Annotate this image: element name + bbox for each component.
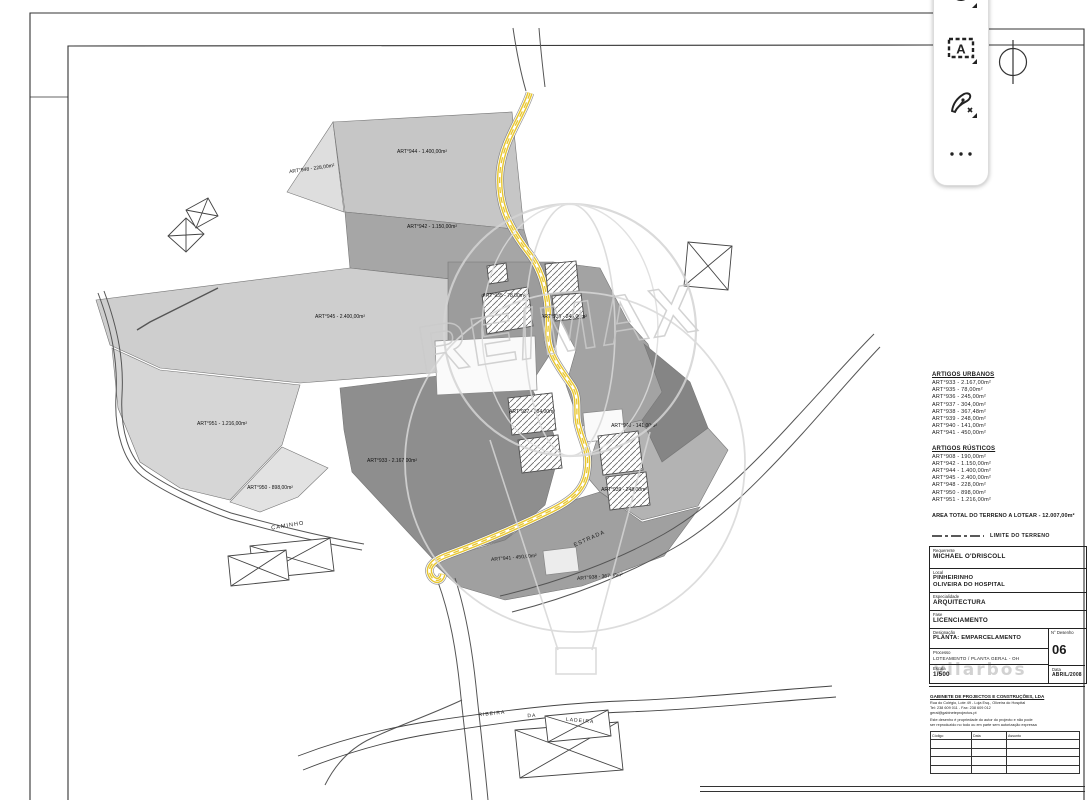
- rev-row: [931, 757, 1080, 766]
- area-schedule: ARTIGOS URBANOS ART°933 - 2.167,00m² ART…: [932, 372, 1086, 519]
- urban-article: ART°935 - 78,00m²: [932, 387, 1086, 394]
- urban-article: ART°937 - 304,00m²: [932, 402, 1086, 409]
- parcel: [333, 112, 524, 230]
- parcel-label: ART°933 - 2.167,00m²: [367, 458, 417, 464]
- parcel-label: ART°950 - 898,00m²: [247, 485, 293, 491]
- north-arrow-icon: [1000, 40, 1027, 84]
- designacao-value: PLANTA: EMPARCELAMENTO: [933, 635, 1048, 642]
- escala-value: 1/500: [933, 671, 1048, 679]
- text-selection-icon[interactable]: A: [944, 31, 978, 65]
- parcel-polygons: [96, 112, 728, 600]
- more-options-icon[interactable]: [944, 137, 978, 171]
- parcel-label: ART°951 - 1.216,00m²: [197, 421, 247, 427]
- rotate-icon[interactable]: [944, 0, 978, 9]
- rustic-article: ART°944 - 1.400,00m²: [932, 468, 1086, 475]
- company-block: GABINETE DE PROJECTOS E CONSTRUÇÕES, LDA…: [930, 694, 1085, 774]
- stream-label: RIBEIRA: [478, 710, 505, 719]
- legend: LIMITE DO TERRENO: [932, 530, 1084, 542]
- parcel-label: ART°937 - 304,00m²: [509, 409, 555, 415]
- local-value-line1: PINHEIRINHO: [933, 575, 1086, 582]
- rustic-article: ART°942 - 1.150,00m²: [932, 461, 1086, 468]
- urban-article: ART°938 - 367,48m²: [932, 409, 1086, 416]
- sheet-fold-lines: [700, 786, 1085, 792]
- urban-article: ART°936 - 245,00m²: [932, 394, 1086, 401]
- fase-value: LICENCIAMENTO: [933, 617, 1086, 625]
- company-email: geral@gabineteprojectos.pt: [930, 711, 1085, 716]
- urban-article: ART°939 - 248,00m²: [932, 416, 1086, 423]
- site-plan-drawing: ART°948 - 228,00m² ART°944 - 1.400,00m² …: [0, 0, 1090, 800]
- local-value-line2: OLIVEIRA DO HOSPITAL: [933, 582, 1086, 589]
- processo-value: LOTEAMENTO / PLANTA GERAL - OH: [933, 655, 1048, 663]
- rustic-article: ART°950 - 898,00m²: [932, 490, 1086, 497]
- copyright-note-line2: ser reproduzido no todo ou em parte sem …: [930, 723, 1085, 728]
- stream-label: DA: [527, 713, 536, 719]
- urban-article: ART°940 - 141,00m²: [932, 423, 1086, 430]
- rev-row: [931, 748, 1080, 757]
- rev-header: Código: [931, 731, 972, 740]
- rustic-article: ART°945 - 2.400,00m²: [932, 475, 1086, 482]
- date-value: ABRIL/2008: [1052, 672, 1085, 680]
- rev-header: Data: [972, 731, 1007, 740]
- requerente-value: MICHAEL O'DRISCOLL: [933, 553, 1086, 561]
- title-block-bottom-rule: [929, 686, 1085, 687]
- rev-row: [931, 740, 1080, 749]
- company-name: GABINETE DE PROJECTOS E CONSTRUÇÕES, LDA: [930, 694, 1085, 699]
- rustic-articles-title: ARTIGOS RÚSTICOS: [932, 446, 1086, 452]
- parcel-label: ART°939 - 248,00m²: [601, 487, 647, 493]
- urban-article: ART°941 - 450,00m²: [932, 430, 1086, 437]
- corner-triangle-icon: [972, 59, 977, 64]
- revisions-table: Código Data Assunto: [930, 731, 1080, 775]
- rev-header: Assunto: [1007, 731, 1080, 740]
- drawing-number-cell: N° Desenho 06 Data ABRIL/2008: [1048, 629, 1085, 683]
- parcel-label: ART°942 - 1.150,00m²: [407, 224, 457, 230]
- drawing-number-value: 06: [1052, 642, 1066, 657]
- svg-text:A: A: [956, 42, 966, 57]
- rev-row: [931, 765, 1080, 774]
- date-cell: Data ABRIL/2008: [1049, 665, 1085, 683]
- viewer-toolbar: A: [933, 0, 989, 186]
- rustic-article: ART°948 - 228,00m²: [932, 482, 1086, 489]
- drawing-number-label: N° Desenho: [1049, 629, 1085, 635]
- urban-articles-title: ARTIGOS URBANOS: [932, 372, 1086, 378]
- pen-icon[interactable]: [944, 85, 978, 119]
- corner-triangle-icon: [972, 3, 977, 8]
- urban-article: ART°933 - 2.167,00m²: [932, 380, 1086, 387]
- legend-label: LIMITE DO TERRENO: [990, 533, 1050, 539]
- total-area: AREA TOTAL DO TERRENO A LOTEAR - 12.007,…: [932, 513, 1086, 519]
- rustic-article: ART°908 - 190,00m²: [932, 454, 1086, 461]
- parcel-label: ART°944 - 1.400,00m²: [397, 149, 447, 155]
- boundary-line-sample: [932, 533, 984, 539]
- road-label-caminho: CAMINHO: [271, 520, 305, 531]
- especialidade-value: ARQUITECTURA: [933, 599, 1086, 607]
- corner-triangle-icon: [972, 113, 977, 118]
- parcel-label: ART°945 - 2.400,00m²: [315, 314, 365, 320]
- rustic-article: ART°951 - 1.216,00m²: [932, 497, 1086, 504]
- title-block: Requerente MICHAEL O'DRISCOLL Local PINH…: [929, 546, 1087, 684]
